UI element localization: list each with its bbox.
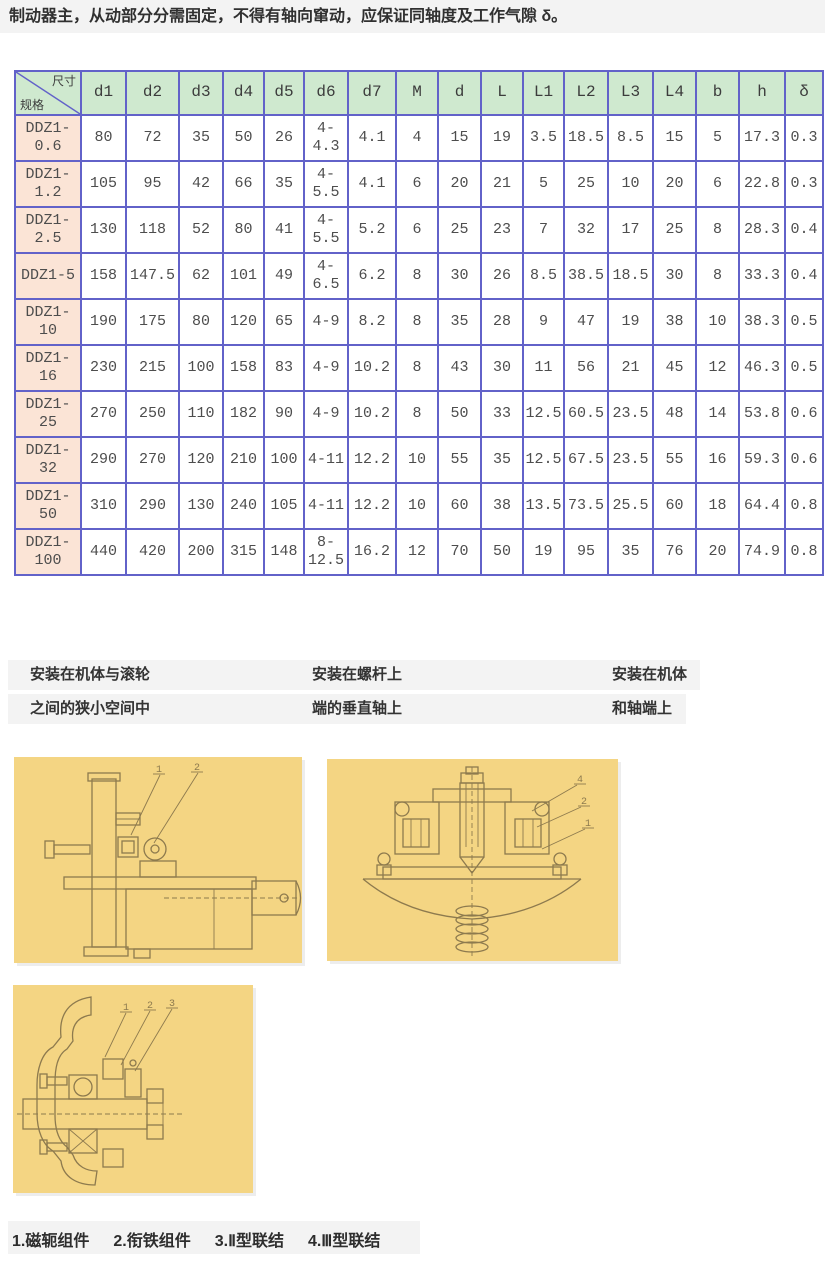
value-cell: 175	[126, 299, 179, 345]
value-cell: 11	[523, 345, 564, 391]
value-cell: 35	[179, 115, 223, 161]
value-cell: 14	[696, 391, 739, 437]
value-cell: 50	[438, 391, 481, 437]
value-cell: 60	[438, 483, 481, 529]
column-header-d: d	[438, 71, 481, 115]
column-header-d1: d1	[81, 71, 126, 115]
value-cell: 148	[264, 529, 304, 575]
column-header-δ: δ	[785, 71, 823, 115]
value-cell: 3.5	[523, 115, 564, 161]
value-cell: 67.5	[564, 437, 608, 483]
value-cell: 8.2	[348, 299, 396, 345]
value-cell: 48	[653, 391, 696, 437]
value-cell: 215	[126, 345, 179, 391]
value-cell: 83	[264, 345, 304, 391]
value-cell: 74.9	[739, 529, 785, 575]
value-cell: 4-5.5	[304, 161, 348, 207]
column-header-d6: d6	[304, 71, 348, 115]
table-row: DDZ1-1.2105954266354-5.54.16202152510206…	[15, 161, 823, 207]
table-row: DDZ1-503102901302401054-1112.210603813.5…	[15, 483, 823, 529]
corner-label-size: 尺寸	[52, 74, 76, 88]
value-cell: 105	[81, 161, 126, 207]
value-cell: 12.2	[348, 483, 396, 529]
value-cell: 8	[696, 207, 739, 253]
value-cell: 43	[438, 345, 481, 391]
value-cell: 28.3	[739, 207, 785, 253]
mount-caption-1-line2: 之间的狭小空间中	[30, 698, 150, 720]
value-cell: 76	[653, 529, 696, 575]
value-cell: 6	[396, 161, 438, 207]
value-cell: 12.5	[523, 391, 564, 437]
value-cell: 90	[264, 391, 304, 437]
value-cell: 101	[223, 253, 264, 299]
value-cell: 45	[653, 345, 696, 391]
value-cell: 26	[264, 115, 304, 161]
value-cell: 55	[653, 437, 696, 483]
mount-caption-3-line1: 安装在机体	[612, 664, 687, 686]
value-cell: 5	[696, 115, 739, 161]
value-cell: 25	[653, 207, 696, 253]
value-cell: 23	[481, 207, 523, 253]
value-cell: 4.1	[348, 115, 396, 161]
value-cell: 4	[396, 115, 438, 161]
value-cell: 8	[696, 253, 739, 299]
value-cell: 12	[396, 529, 438, 575]
value-cell: 0.4	[785, 207, 823, 253]
value-cell: 15	[438, 115, 481, 161]
value-cell: 240	[223, 483, 264, 529]
value-cell: 55	[438, 437, 481, 483]
value-cell: 10.2	[348, 345, 396, 391]
table-head: 尺寸 规格 d1d2d3d4d5d6d7MdLL1L2L3L4bhδ	[15, 71, 823, 115]
value-cell: 10	[396, 437, 438, 483]
table-row: DDZ1-1019017580120654-98.283528947193810…	[15, 299, 823, 345]
model-cell: DDZ1-32	[15, 437, 81, 483]
figure-legend: 1.磁轭组件 2.衔铁组件 3.Ⅱ型联结 4.Ⅲ型联结	[12, 1227, 380, 1251]
value-cell: 270	[81, 391, 126, 437]
model-cell: DDZ1-0.6	[15, 115, 81, 161]
value-cell: 21	[481, 161, 523, 207]
value-cell: 8.5	[608, 115, 653, 161]
column-header-b: b	[696, 71, 739, 115]
value-cell: 19	[523, 529, 564, 575]
model-cell: DDZ1-10	[15, 299, 81, 345]
value-cell: 290	[81, 437, 126, 483]
column-header-L3: L3	[608, 71, 653, 115]
column-header-d3: d3	[179, 71, 223, 115]
column-header-d4: d4	[223, 71, 264, 115]
mount-caption-2-line2: 端的垂直轴上	[312, 698, 402, 720]
value-cell: 4-11	[304, 437, 348, 483]
value-cell: 18.5	[608, 253, 653, 299]
value-cell: 6.2	[348, 253, 396, 299]
model-cell: DDZ1-16	[15, 345, 81, 391]
value-cell: 120	[223, 299, 264, 345]
value-cell: 182	[223, 391, 264, 437]
value-cell: 4-5.5	[304, 207, 348, 253]
value-cell: 18	[696, 483, 739, 529]
value-cell: 26	[481, 253, 523, 299]
value-cell: 30	[653, 253, 696, 299]
value-cell: 38	[653, 299, 696, 345]
value-cell: 19	[608, 299, 653, 345]
value-cell: 46.3	[739, 345, 785, 391]
value-cell: 190	[81, 299, 126, 345]
value-cell: 158	[223, 345, 264, 391]
value-cell: 80	[81, 115, 126, 161]
value-cell: 130	[179, 483, 223, 529]
value-cell: 73.5	[564, 483, 608, 529]
figure-body-shaft-end-mount: 1 2 3	[13, 985, 253, 1193]
value-cell: 50	[223, 115, 264, 161]
value-cell: 230	[81, 345, 126, 391]
value-cell: 10	[696, 299, 739, 345]
value-cell: 6	[396, 207, 438, 253]
value-cell: 10	[608, 161, 653, 207]
value-cell: 19	[481, 115, 523, 161]
value-cell: 0.8	[785, 529, 823, 575]
value-cell: 100	[179, 345, 223, 391]
value-cell: 20	[438, 161, 481, 207]
value-cell: 0.6	[785, 391, 823, 437]
model-cell: DDZ1-25	[15, 391, 81, 437]
table-row: DDZ1-16230215100158834-910.2843301156214…	[15, 345, 823, 391]
legend-item-4: 4.Ⅲ型联结	[308, 1227, 380, 1251]
value-cell: 8	[396, 391, 438, 437]
value-cell: 10	[396, 483, 438, 529]
value-cell: 18.5	[564, 115, 608, 161]
column-header-L: L	[481, 71, 523, 115]
value-cell: 70	[438, 529, 481, 575]
value-cell: 66	[223, 161, 264, 207]
value-cell: 5.2	[348, 207, 396, 253]
value-cell: 38.5	[564, 253, 608, 299]
value-cell: 270	[126, 437, 179, 483]
value-cell: 8	[396, 345, 438, 391]
value-cell: 62	[179, 253, 223, 299]
column-header-h: h	[739, 71, 785, 115]
column-header-d7: d7	[348, 71, 396, 115]
value-cell: 30	[438, 253, 481, 299]
table-row: DDZ1-0.680723550264-4.34.1415193.518.58.…	[15, 115, 823, 161]
value-cell: 30	[481, 345, 523, 391]
value-cell: 52	[179, 207, 223, 253]
mount-caption-2-line1: 安装在螺杆上	[312, 664, 402, 686]
value-cell: 35	[438, 299, 481, 345]
value-cell: 0.3	[785, 161, 823, 207]
value-cell: 290	[126, 483, 179, 529]
body-shaft-end-mount-drawing-icon: 1 2 3	[13, 985, 253, 1193]
table-row: DDZ1-25270250110182904-910.28503312.560.…	[15, 391, 823, 437]
figure-screw-shaft-mount: 4 2 1	[327, 759, 618, 961]
column-header-L1: L1	[523, 71, 564, 115]
value-cell: 60.5	[564, 391, 608, 437]
value-cell: 250	[126, 391, 179, 437]
mount-caption-3-line2: 和轴端上	[612, 698, 672, 720]
value-cell: 9	[523, 299, 564, 345]
value-cell: 120	[179, 437, 223, 483]
value-cell: 4-9	[304, 345, 348, 391]
table-row: DDZ1-5158147.562101494-6.56.2830268.538.…	[15, 253, 823, 299]
value-cell: 25	[564, 161, 608, 207]
value-cell: 0.4	[785, 253, 823, 299]
value-cell: 5	[523, 161, 564, 207]
column-header-d5: d5	[264, 71, 304, 115]
value-cell: 0.5	[785, 345, 823, 391]
value-cell: 4-11	[304, 483, 348, 529]
value-cell: 15	[653, 115, 696, 161]
value-cell: 310	[81, 483, 126, 529]
value-cell: 25	[438, 207, 481, 253]
value-cell: 17	[608, 207, 653, 253]
value-cell: 118	[126, 207, 179, 253]
value-cell: 41	[264, 207, 304, 253]
value-cell: 95	[564, 529, 608, 575]
legend-item-1: 1.磁轭组件	[12, 1227, 89, 1251]
value-cell: 4-9	[304, 299, 348, 345]
value-cell: 315	[223, 529, 264, 575]
value-cell: 8	[396, 299, 438, 345]
value-cell: 80	[179, 299, 223, 345]
value-cell: 4-4.3	[304, 115, 348, 161]
value-cell: 4-6.5	[304, 253, 348, 299]
model-cell: DDZ1-100	[15, 529, 81, 575]
roller-gap-mount-drawing-icon: 1 2	[14, 757, 302, 963]
value-cell: 105	[264, 483, 304, 529]
value-cell: 72	[126, 115, 179, 161]
legend-item-2: 2.衔铁组件	[113, 1227, 190, 1251]
table-header-row: 尺寸 规格 d1d2d3d4d5d6d7MdLL1L2L3L4bhδ	[15, 71, 823, 115]
value-cell: 8-12.5	[304, 529, 348, 575]
value-cell: 16.2	[348, 529, 396, 575]
value-cell: 0.3	[785, 115, 823, 161]
column-header-L4: L4	[653, 71, 696, 115]
value-cell: 210	[223, 437, 264, 483]
value-cell: 32	[564, 207, 608, 253]
value-cell: 420	[126, 529, 179, 575]
legend-item-3: 3.Ⅱ型联结	[215, 1227, 284, 1251]
table-body: DDZ1-0.680723550264-4.34.1415193.518.58.…	[15, 115, 823, 575]
value-cell: 12.5	[523, 437, 564, 483]
value-cell: 12.2	[348, 437, 396, 483]
dimension-spec-table: 尺寸 规格 d1d2d3d4d5d6d7MdLL1L2L3L4bhδ DDZ1-…	[14, 70, 824, 576]
table-corner-cell: 尺寸 规格	[15, 71, 81, 115]
value-cell: 95	[126, 161, 179, 207]
value-cell: 17.3	[739, 115, 785, 161]
value-cell: 35	[481, 437, 523, 483]
value-cell: 0.5	[785, 299, 823, 345]
table-row: DDZ1-322902701202101004-1112.210553512.5…	[15, 437, 823, 483]
column-header-M: M	[396, 71, 438, 115]
value-cell: 110	[179, 391, 223, 437]
value-cell: 47	[564, 299, 608, 345]
value-cell: 23.5	[608, 391, 653, 437]
value-cell: 158	[81, 253, 126, 299]
value-cell: 60	[653, 483, 696, 529]
value-cell: 21	[608, 345, 653, 391]
value-cell: 35	[608, 529, 653, 575]
mount-caption-1-line1: 安装在机体与滚轮	[30, 664, 150, 686]
value-cell: 65	[264, 299, 304, 345]
model-cell: DDZ1-2.5	[15, 207, 81, 253]
model-cell: DDZ1-1.2	[15, 161, 81, 207]
value-cell: 22.8	[739, 161, 785, 207]
value-cell: 28	[481, 299, 523, 345]
screw-shaft-mount-drawing-icon: 4 2 1	[327, 759, 618, 961]
column-header-L2: L2	[564, 71, 608, 115]
value-cell: 8.5	[523, 253, 564, 299]
value-cell: 20	[696, 529, 739, 575]
value-cell: 33.3	[739, 253, 785, 299]
value-cell: 7	[523, 207, 564, 253]
value-cell: 23.5	[608, 437, 653, 483]
value-cell: 8	[396, 253, 438, 299]
value-cell: 20	[653, 161, 696, 207]
table-row: DDZ1-2.51301185280414-5.55.2625237321725…	[15, 207, 823, 253]
value-cell: 56	[564, 345, 608, 391]
model-cell: DDZ1-5	[15, 253, 81, 299]
value-cell: 130	[81, 207, 126, 253]
value-cell: 0.8	[785, 483, 823, 529]
value-cell: 25.5	[608, 483, 653, 529]
table-row: DDZ1-1004404202003151488-12.516.21270501…	[15, 529, 823, 575]
value-cell: 147.5	[126, 253, 179, 299]
value-cell: 49	[264, 253, 304, 299]
value-cell: 4.1	[348, 161, 396, 207]
value-cell: 38.3	[739, 299, 785, 345]
value-cell: 53.8	[739, 391, 785, 437]
value-cell: 12	[696, 345, 739, 391]
value-cell: 50	[481, 529, 523, 575]
value-cell: 440	[81, 529, 126, 575]
corner-label-model: 规格	[20, 98, 44, 112]
value-cell: 0.6	[785, 437, 823, 483]
intro-note: 制动器主，从动部分分需固定，不得有轴向窜动，应保证同轴度及工作气隙 δ。	[9, 6, 819, 28]
value-cell: 100	[264, 437, 304, 483]
value-cell: 4-9	[304, 391, 348, 437]
value-cell: 13.5	[523, 483, 564, 529]
value-cell: 16	[696, 437, 739, 483]
value-cell: 80	[223, 207, 264, 253]
value-cell: 33	[481, 391, 523, 437]
value-cell: 38	[481, 483, 523, 529]
value-cell: 200	[179, 529, 223, 575]
figure-roller-gap-mount: 1 2	[14, 757, 302, 963]
model-cell: DDZ1-50	[15, 483, 81, 529]
value-cell: 64.4	[739, 483, 785, 529]
column-header-d2: d2	[126, 71, 179, 115]
value-cell: 59.3	[739, 437, 785, 483]
value-cell: 6	[696, 161, 739, 207]
value-cell: 42	[179, 161, 223, 207]
value-cell: 35	[264, 161, 304, 207]
value-cell: 10.2	[348, 391, 396, 437]
